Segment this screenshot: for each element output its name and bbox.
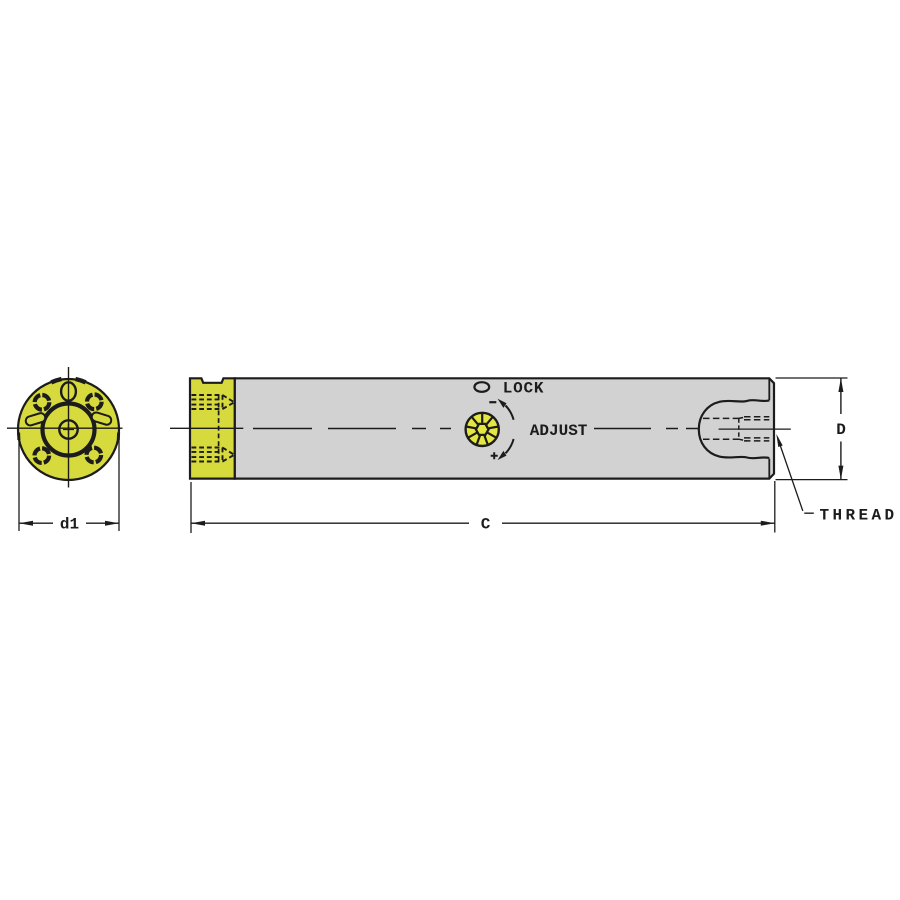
svg-text:ADJUST: ADJUST bbox=[530, 422, 588, 440]
svg-text:THREAD: THREAD bbox=[820, 507, 898, 525]
svg-text:d1: d1 bbox=[60, 516, 79, 534]
svg-text:LOCK: LOCK bbox=[503, 379, 545, 397]
svg-text:D: D bbox=[836, 421, 846, 439]
svg-text:C: C bbox=[481, 516, 491, 534]
